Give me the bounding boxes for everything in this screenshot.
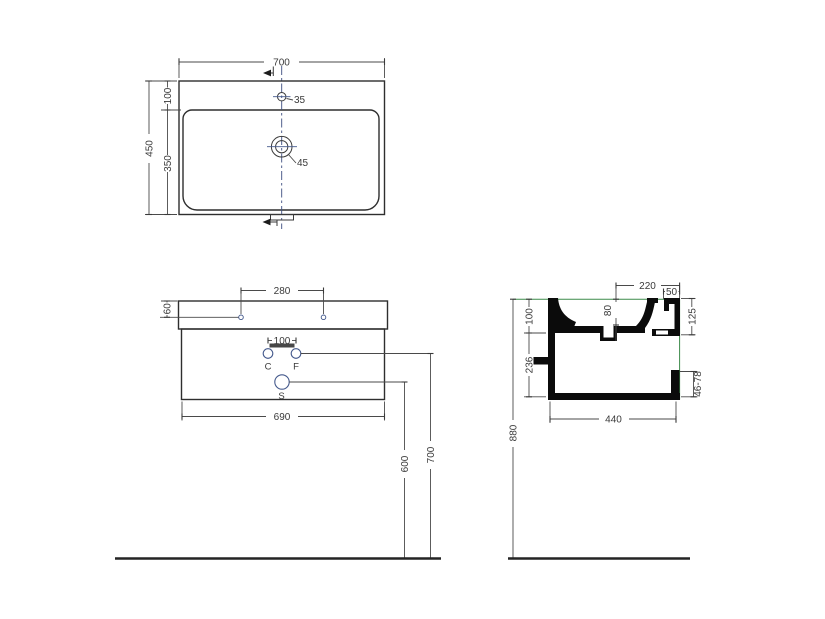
fixing-hole-right [321,315,326,320]
label-s: S [278,391,284,402]
label-f: F [293,362,299,373]
dim-cabinet-width: 690 [274,412,291,423]
dim-rear-height: 125 [687,308,698,325]
top-view: 35 45 700 [145,58,385,230]
dim-bowl-depth: 80 [603,305,614,317]
dim-hole-offset: 60 [163,303,174,315]
dim-bottom-depth: 440 [605,414,622,425]
dim-hole-spacing: 280 [274,286,291,297]
dim-faucet-hole: 35 [294,95,306,106]
dim-cabinet-height: 236 [525,356,536,373]
dim-total-depth: 450 [145,140,156,157]
dim-total-height: 880 [509,424,520,441]
dim-drain-hole: 45 [297,158,309,169]
technical-drawing-washbasin: 35 45 700 [0,0,825,619]
basin-bowl-rect [183,110,379,210]
dim-top-width: 700 [273,58,290,69]
dim-front-depth: 350 [163,155,174,172]
front-view: 280 60 C F S 100 [115,286,441,559]
hole-c [263,349,273,359]
dim-gap-range: 46-78 [693,371,704,397]
dim-basin-height: 100 [525,308,536,325]
dim-back-depth: 100 [163,87,174,104]
dim-cf-spacing: 100 [274,336,291,347]
hole-s [275,375,289,389]
basin-front-face [179,301,388,329]
dim-top-depth: 220 [639,281,656,292]
dim-drain-height: 600 [400,455,411,472]
basin-section [548,298,680,341]
section-arrow-top [263,67,273,77]
drain-leader [288,154,296,163]
dim-heights-lines [289,354,433,559]
faucet-leader [287,99,294,101]
drawing-canvas: 35 45 700 [0,0,825,619]
section-arrowhead-icon [263,219,271,226]
fixing-hole-left [239,315,244,320]
label-c: C [265,362,272,373]
dim-supply-height: 700 [426,446,437,463]
section-arrowhead-icon [263,70,271,77]
side-section-view: 220 50 80 125 [508,281,704,559]
hole-f [291,349,301,359]
section-arrow-bottom [263,215,294,227]
dim-rear-ledge: 50 [666,287,678,298]
cabinet-section [534,333,681,400]
